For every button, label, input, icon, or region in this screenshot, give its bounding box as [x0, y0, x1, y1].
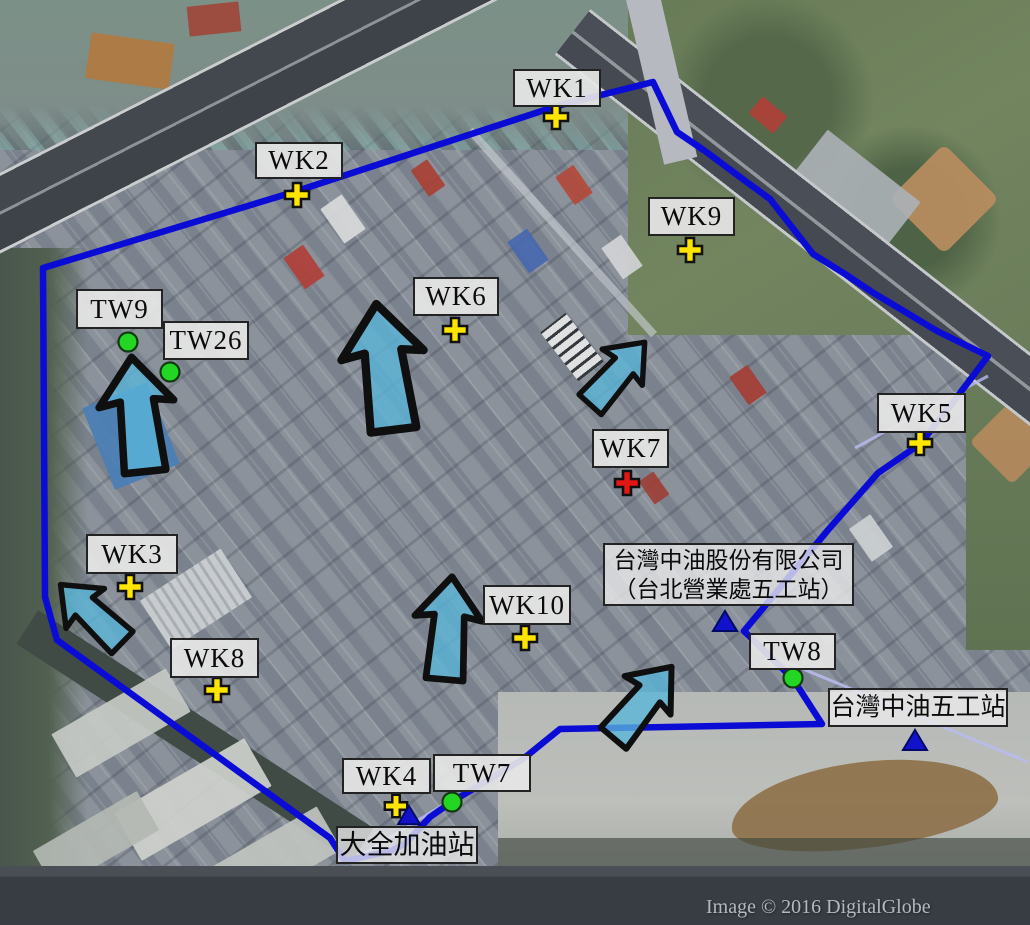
- marker-wk3: [115, 572, 145, 602]
- green-circle-icon: [116, 330, 140, 354]
- yellow-cross-icon: [202, 675, 232, 705]
- marker-wk10: [510, 623, 540, 653]
- callout-cpc-wugong: 台灣中油五工站: [828, 688, 1008, 727]
- marker-cpc-wugong-station: [901, 728, 929, 752]
- callout-wk7-text: WK7: [600, 435, 661, 462]
- callout-cpc-wugong-text: 台灣中油五工站: [830, 693, 1005, 722]
- callout-cpc-main-line2: （台北營業處五工站）: [614, 575, 844, 604]
- attribution-text: Image © 2016 DigitalGlobe: [706, 896, 931, 918]
- callout-wk2-text: WK2: [268, 147, 329, 174]
- callout-daquan-text: 大全加油站: [340, 831, 475, 860]
- marker-wk8: [202, 675, 232, 705]
- callout-tw9: TW9: [76, 289, 163, 329]
- flow-arrow-north-central: [400, 569, 494, 688]
- callout-wk5: WK5: [877, 393, 966, 433]
- marker-tw7: [440, 790, 464, 814]
- marker-tw9: [116, 330, 140, 354]
- satellite-map: WK1 WK2 WK9 WK6 TW9 TW26 WK5 WK7 WK3 台灣中…: [0, 0, 1030, 925]
- callout-tw9-text: TW9: [90, 296, 148, 323]
- yellow-cross-icon: [115, 572, 145, 602]
- callout-wk7: WK7: [592, 429, 669, 468]
- callout-wk4: WK4: [342, 758, 431, 794]
- callout-wk6: WK6: [413, 277, 499, 316]
- marker-wk9: [675, 235, 705, 265]
- yellow-cross-icon: [282, 180, 312, 210]
- callout-wk9-text: WK9: [661, 203, 722, 230]
- callout-wk6-text: WK6: [425, 283, 486, 310]
- callout-wk3: WK3: [86, 534, 178, 574]
- callout-tw26-text: TW26: [170, 327, 243, 354]
- callout-tw8-text: TW8: [763, 638, 821, 665]
- yellow-cross-icon: [440, 315, 470, 345]
- yellow-cross-icon: [675, 235, 705, 265]
- green-circle-icon: [158, 360, 182, 384]
- image-attribution: Image © 2016 DigitalGlobe: [706, 896, 931, 919]
- marker-tw26: [158, 360, 182, 384]
- callout-tw7-text: TW7: [453, 760, 511, 787]
- callout-wk10-text: WK10: [489, 592, 565, 619]
- blue-triangle-icon: [901, 728, 929, 752]
- callout-wk1-text: WK1: [526, 75, 587, 102]
- marker-wk7: [612, 468, 642, 498]
- callout-cpc-main: 台灣中油股份有限公司 （台北營業處五工站）: [603, 543, 854, 606]
- callout-wk8-text: WK8: [184, 645, 245, 672]
- callout-wk9: WK9: [648, 197, 735, 236]
- callout-wk3-text: WK3: [101, 541, 162, 568]
- blue-triangle-icon: [396, 804, 422, 826]
- yellow-cross-icon: [510, 623, 540, 653]
- marker-wk6: [440, 315, 470, 345]
- callout-wk8: WK8: [170, 638, 259, 678]
- marker-wk2: [282, 180, 312, 210]
- callout-wk10: WK10: [483, 585, 571, 625]
- marker-cpc-main-station: [711, 609, 739, 633]
- callout-wk1: WK1: [513, 69, 601, 107]
- callout-tw7: TW7: [433, 754, 531, 792]
- callout-tw8: TW8: [749, 633, 836, 670]
- callout-tw26: TW26: [163, 321, 249, 360]
- callout-daquan: 大全加油站: [336, 826, 478, 864]
- red-cross-icon: [612, 468, 642, 498]
- callout-wk4-text: WK4: [356, 763, 417, 790]
- blue-triangle-icon: [711, 609, 739, 633]
- green-circle-icon: [440, 790, 464, 814]
- callout-wk2: WK2: [255, 142, 343, 179]
- callout-wk5-text: WK5: [891, 400, 952, 427]
- callout-cpc-main-line1: 台灣中油股份有限公司: [614, 546, 844, 575]
- marker-daquan-station: [396, 804, 422, 826]
